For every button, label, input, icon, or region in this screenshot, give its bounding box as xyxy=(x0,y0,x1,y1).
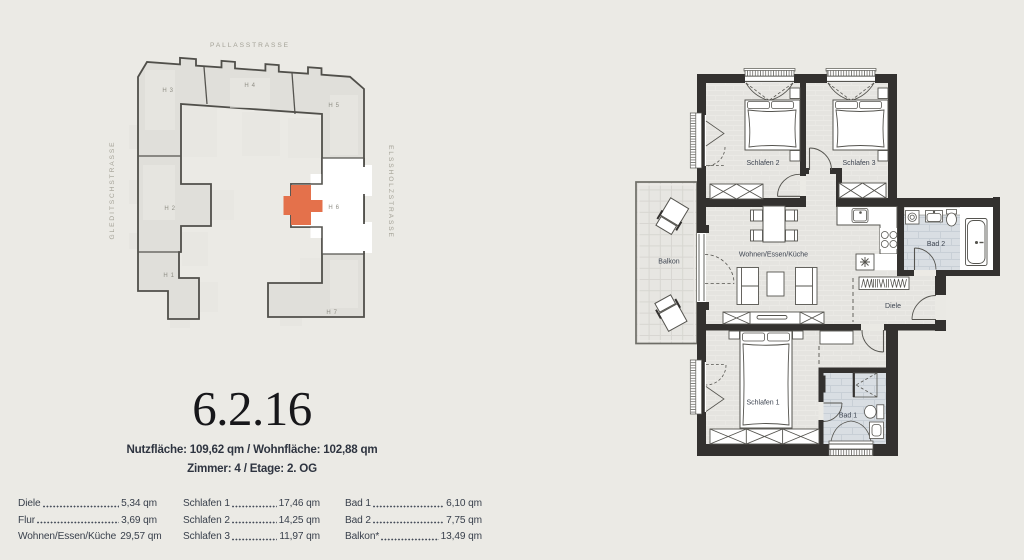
svg-text:H 6: H 6 xyxy=(328,205,339,211)
svg-text:GLEDITSCHSTRASSE: GLEDITSCHSTRASSE xyxy=(109,141,116,240)
svg-text:Bad 1: Bad 1 xyxy=(839,413,857,420)
svg-text:Schlafen 1: Schlafen 1 xyxy=(746,400,779,407)
svg-text:Diele: Diele xyxy=(885,303,901,310)
svg-text:H 5: H 5 xyxy=(328,103,339,109)
svg-text:H 3: H 3 xyxy=(162,88,173,94)
svg-text:Bad 2: Bad 2 xyxy=(927,241,945,248)
svg-text:PALLASSTRASSE: PALLASSTRASSE xyxy=(210,42,290,49)
svg-text:H 1: H 1 xyxy=(163,273,174,279)
svg-text:H 7: H 7 xyxy=(326,310,337,316)
svg-text:ELSSHOLZSTRASSE: ELSSHOLZSTRASSE xyxy=(387,145,394,239)
svg-text:Schlafen 2: Schlafen 2 xyxy=(746,160,779,167)
svg-text:H 2: H 2 xyxy=(164,206,175,212)
svg-text:Schlafen 3: Schlafen 3 xyxy=(842,160,875,167)
svg-text:Wohnen/Essen/Küche: Wohnen/Essen/Küche xyxy=(739,252,808,259)
svg-text:Balkon: Balkon xyxy=(658,259,680,266)
svg-text:H 4: H 4 xyxy=(244,83,255,89)
